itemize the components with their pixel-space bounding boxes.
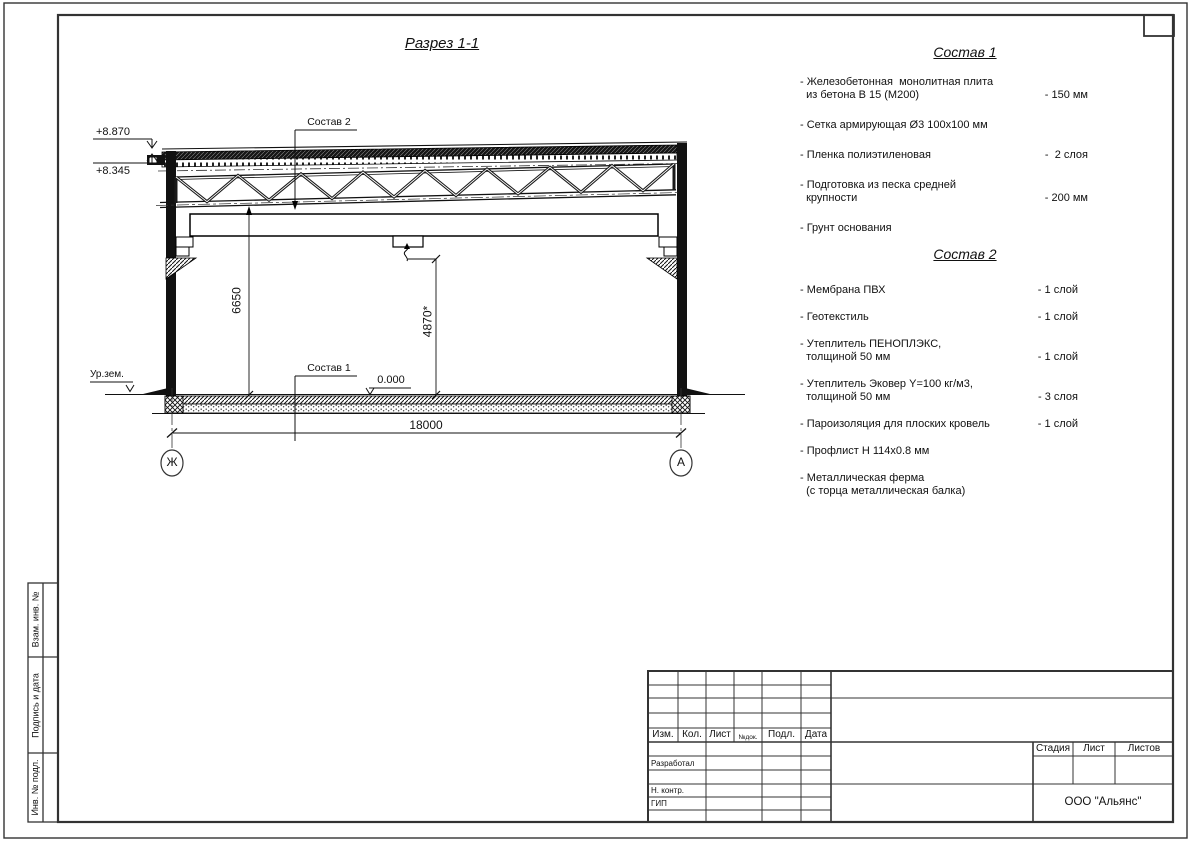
stamp-stage-header: Стадия [1033,743,1073,755]
beam-center-bracket [393,236,423,261]
stamp-role-developer: Разработал [651,759,695,769]
spec2-item: - Металлическая ферма (с торца металличе… [800,472,1078,498]
stamp-col-list: Лист [706,729,734,741]
stamp-role-gip: ГИП [651,799,667,809]
roof-assembly [147,142,687,171]
elevation-bearing-label: +8.345 [96,165,130,177]
beam [190,214,658,236]
spec2-item: - Пароизоляция для плоских кровель- 1 сл… [800,418,1078,431]
strip-inv-podl: Инв. № подл. [29,753,42,822]
stamp-sheets-header: Листов [1115,743,1173,755]
drawing-sheet: { "page": { "title": "Разрез 1-1" }, "dr… [0,0,1191,842]
spec2-list: - Мембрана ПВХ- 1 слой - Геотекстиль- 1 … [800,284,1078,512]
stamp-sheet-header: Лист [1073,743,1115,755]
column-right [677,143,687,397]
dim-6650-label: 6650 [231,276,244,326]
axis-letter-left: Ж [160,456,184,469]
strip-vzam-inv: Взам. инв. № [29,583,42,657]
dim-4870-label: 4870* [422,297,435,347]
corbel-right [647,237,677,279]
ground-level-mark [90,382,134,392]
roof-truss [156,164,680,208]
spec2-item: - Профлист Н 114х0.8 мм [800,445,1078,458]
spec2-item: - Геотекстиль- 1 слой [800,311,1078,324]
strip-podpis-data: Подпись и дата [29,657,42,753]
floor-callout-label: Состав 1 [298,362,360,374]
elevation-roof-label: +8.870 [96,126,130,138]
ground-level-label: Ур.зем. [90,369,124,381]
spec2-title: Состав 2 [880,246,1050,262]
stamp-role-ncontrol: Н. контр. [651,786,684,796]
spec1-list: - Железобетонная монолитная плита из бет… [800,76,1088,252]
spec1-title: Состав 1 [880,44,1050,60]
corner-doc-box [1144,15,1174,36]
spec1-item: - Сетка армирующая Ø3 100х100 мм [800,119,1088,132]
elevation-floor-label: 0.000 [370,374,412,386]
stamp-col-ndok: №док. [734,732,762,744]
dim-18000-label: 18000 [398,419,454,432]
spec1-item: - Подготовка из песка средней крупности-… [800,179,1088,205]
elevation-mark-roof [93,139,157,148]
stamp-col-podl: Подл. [762,729,801,741]
spec2-item: - Мембрана ПВХ- 1 слой [800,284,1078,297]
stamp-col-kol: Кол. [678,729,706,741]
stamp-col-izm: Изм. [648,729,678,741]
spec1-item: - Грунт основания [800,222,1088,235]
page-title: Разрез 1-1 [377,35,507,52]
spec2-item: - Утеплитель ПЕНОПЛЭКС, толщиной 50 мм- … [800,338,1078,364]
stamp-col-data: Дата [801,729,831,741]
axis-letter-right: А [669,456,693,469]
spec1-item: - Пленка полиэтиленовая- 2 слоя [800,149,1088,162]
roof-callout-label: Состав 2 [298,116,360,128]
stamp-company: ООО "Альянс" [1033,796,1173,808]
floor-slab [105,389,745,414]
spec1-item: - Железобетонная монолитная плита из бет… [800,76,1088,102]
elevation-mark-floor [366,388,411,395]
spec2-item: - Утеплитель Эковер Y=100 кг/м3, толщино… [800,378,1078,404]
